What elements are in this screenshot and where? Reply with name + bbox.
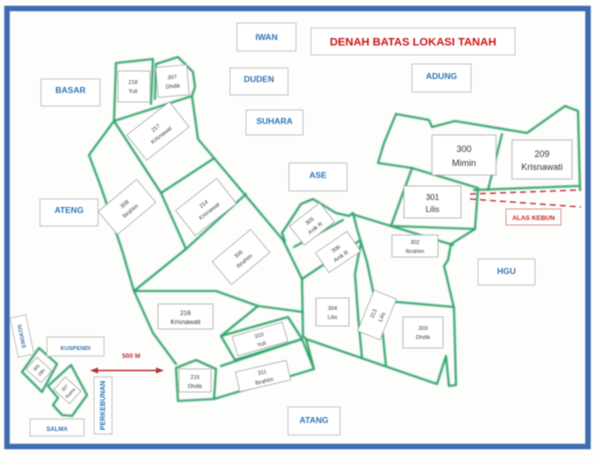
svg-text:Krisnawati: Krisnawati [521, 162, 563, 172]
svg-text:Lilis: Lilis [426, 205, 440, 214]
svg-text:ATENG: ATENG [54, 205, 84, 215]
svg-text:Mimin: Mimin [452, 158, 476, 168]
svg-text:BASAR: BASAR [55, 85, 85, 95]
svg-text:SUHARA: SUHARA [256, 116, 292, 126]
svg-text:500 M: 500 M [122, 353, 141, 360]
svg-text:ALAS KEBUN: ALAS KEBUN [512, 215, 555, 222]
svg-text:302: 302 [410, 240, 419, 246]
svg-text:ATANG: ATANG [300, 415, 329, 425]
svg-text:307: 307 [167, 75, 177, 82]
svg-text:Lilis: Lilis [328, 315, 338, 321]
svg-text:IWAN: IWAN [255, 32, 277, 42]
svg-text:303: 303 [418, 326, 427, 332]
svg-text:218: 218 [128, 80, 137, 86]
svg-text:300: 300 [456, 144, 471, 154]
svg-text:DENAH BATAS LOKASI TANAH: DENAH BATAS LOKASI TANAH [330, 37, 497, 49]
svg-text:Krisnawati: Krisnawati [171, 319, 201, 326]
svg-text:DUDEN: DUDEN [244, 74, 274, 84]
svg-text:215: 215 [190, 375, 199, 381]
svg-text:Dhdik: Dhdik [188, 384, 203, 390]
svg-text:KUSPENDI: KUSPENDI [61, 346, 91, 352]
svg-text:304: 304 [328, 306, 337, 312]
svg-text:SALMA: SALMA [46, 427, 68, 433]
svg-text:301: 301 [426, 193, 440, 202]
svg-text:Dhdik: Dhdik [416, 335, 431, 341]
svg-text:Ibrahim: Ibrahim [406, 249, 425, 255]
svg-text:HGU: HGU [497, 266, 516, 276]
svg-text:Yuli: Yuli [128, 89, 137, 95]
svg-text:PERKEBUNAN: PERKEBUNAN [100, 381, 107, 430]
svg-text:ASE: ASE [309, 170, 327, 180]
svg-text:Dhdik: Dhdik [166, 83, 181, 90]
svg-text:ADUNG: ADUNG [426, 71, 458, 81]
svg-text:216: 216 [180, 310, 191, 317]
svg-text:209: 209 [534, 149, 549, 159]
